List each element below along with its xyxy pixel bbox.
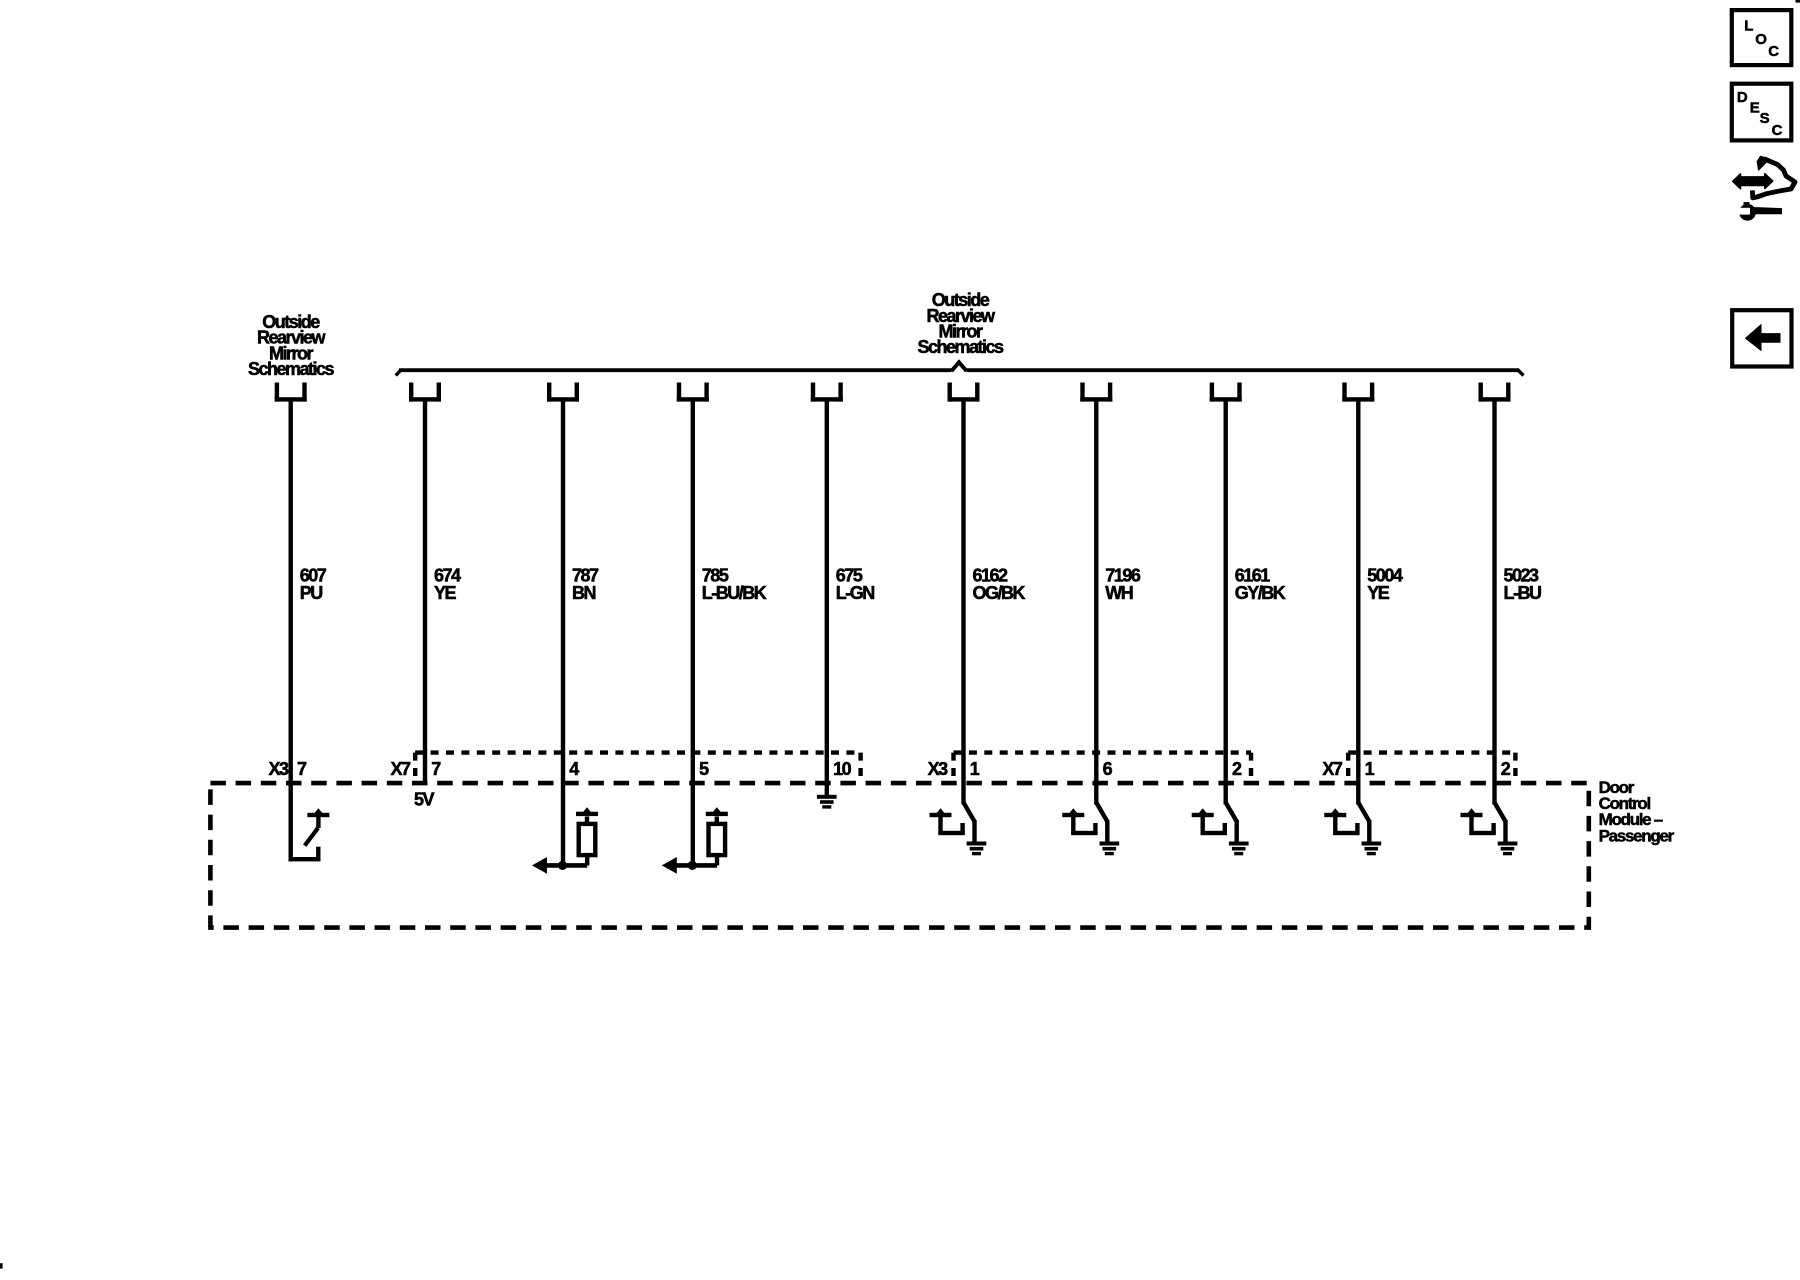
svg-text:OG/BK: OG/BK	[973, 583, 1026, 603]
svg-text:X3: X3	[268, 759, 289, 779]
svg-text:6: 6	[1103, 759, 1113, 779]
svg-text:PU: PU	[300, 583, 323, 603]
svg-text:2: 2	[1501, 759, 1511, 779]
svg-text:4: 4	[569, 759, 579, 779]
svg-text:O: O	[1755, 31, 1767, 48]
svg-text:10: 10	[833, 759, 852, 779]
svg-text:1: 1	[970, 759, 980, 779]
svg-text:GY/BK: GY/BK	[1235, 583, 1286, 603]
svg-text:D: D	[1737, 89, 1748, 106]
svg-text:YE: YE	[1367, 583, 1390, 603]
svg-text:5: 5	[699, 759, 709, 779]
svg-text:X7: X7	[390, 759, 411, 779]
svg-text:5V: 5V	[414, 790, 435, 810]
svg-text:Passenger: Passenger	[1599, 826, 1675, 845]
svg-text:X7: X7	[1322, 759, 1343, 779]
svg-text:1: 1	[1365, 759, 1375, 779]
svg-text:E: E	[1750, 99, 1760, 116]
svg-text:Schematics: Schematics	[917, 337, 1004, 357]
svg-text:L-BU/BK: L-BU/BK	[702, 583, 767, 603]
svg-text:7: 7	[431, 759, 441, 779]
svg-text:S: S	[1760, 110, 1770, 127]
svg-text:BN: BN	[572, 583, 595, 603]
svg-text:X3: X3	[928, 759, 949, 779]
svg-text:L-GN: L-GN	[836, 583, 874, 603]
svg-text:L: L	[1744, 18, 1753, 35]
svg-text:C: C	[1768, 43, 1779, 60]
svg-text:L-BU: L-BU	[1504, 583, 1541, 603]
svg-text:C: C	[1772, 122, 1783, 139]
svg-text:YE: YE	[434, 583, 457, 603]
svg-text:Schematics: Schematics	[248, 359, 335, 379]
svg-text:WH: WH	[1105, 583, 1132, 603]
svg-text:7: 7	[297, 759, 307, 779]
svg-text:2: 2	[1232, 759, 1242, 779]
